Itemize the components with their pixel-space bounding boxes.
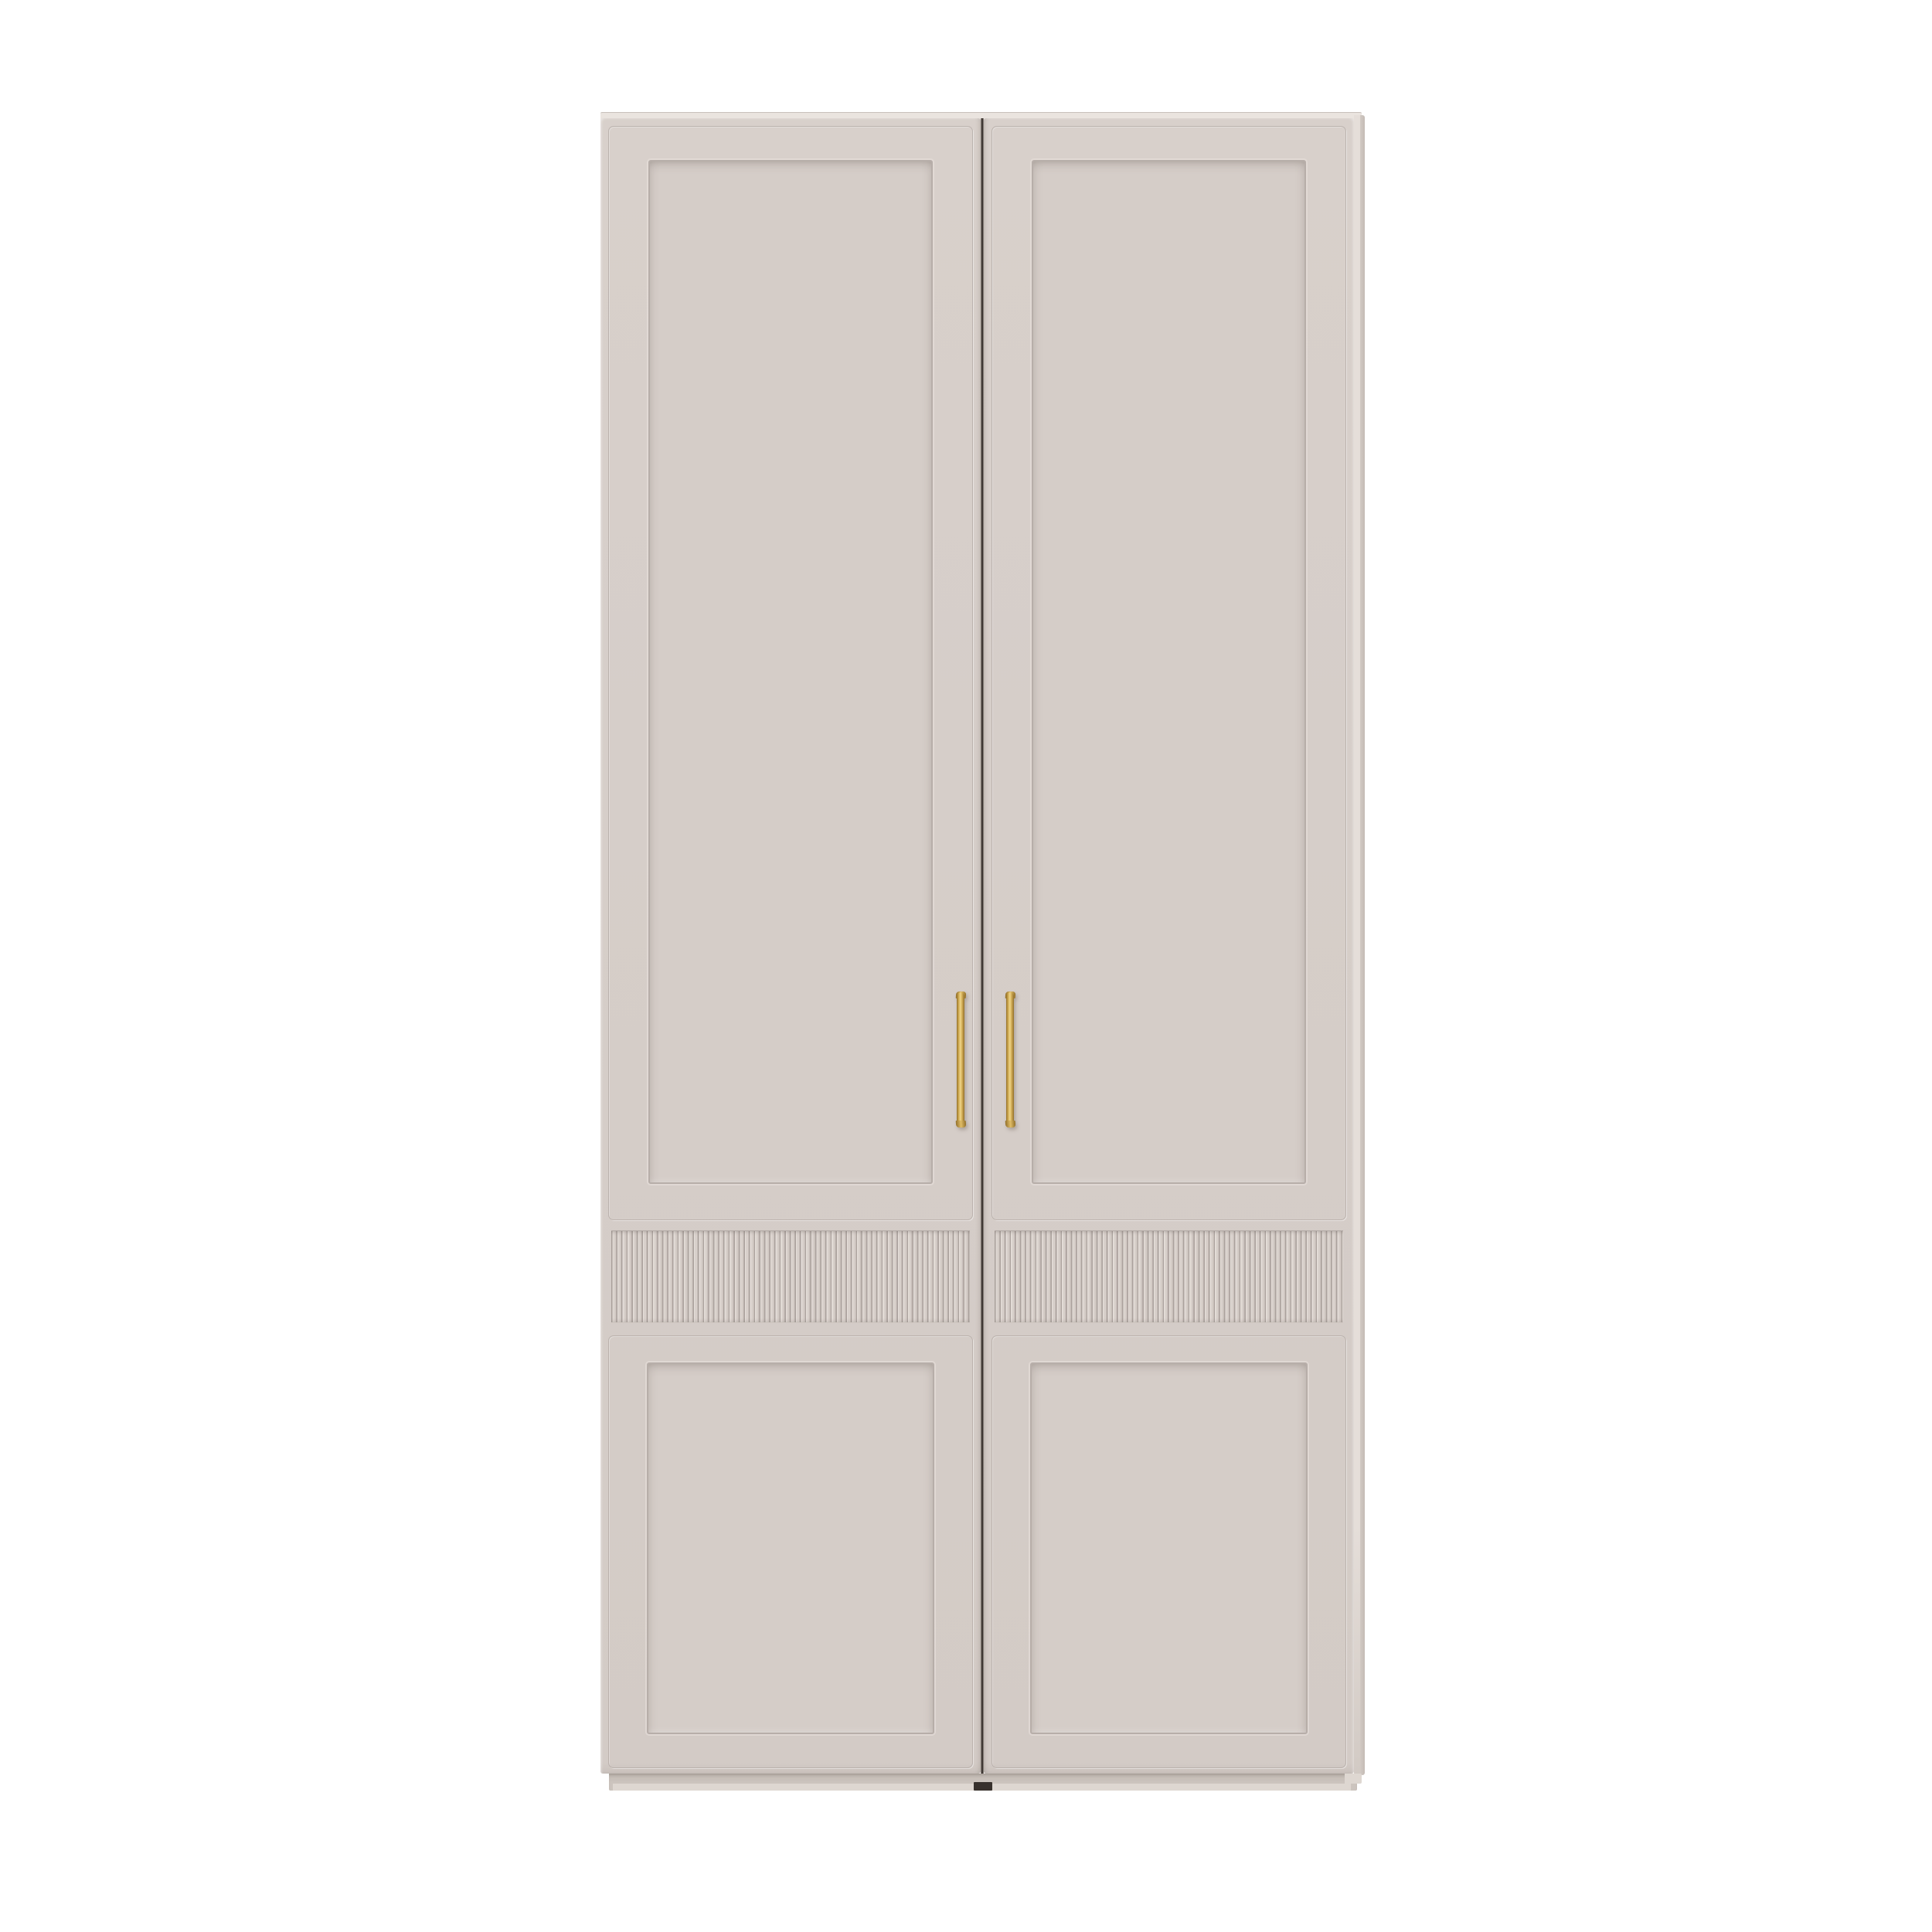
cabinet-right-side-highlight bbox=[1354, 115, 1360, 1775]
plinth-center-notch bbox=[974, 1782, 992, 1791]
plinth-base bbox=[609, 1774, 1357, 1791]
handle-bar bbox=[957, 992, 964, 1127]
product-render-canvas bbox=[0, 0, 1932, 1932]
plinth-right-foot bbox=[1345, 1774, 1362, 1784]
right-door-fluted-band bbox=[995, 1230, 1343, 1323]
left-door-brass-handle bbox=[957, 992, 964, 1127]
left-door-fluted-band bbox=[611, 1230, 970, 1323]
left-door-upper-panel bbox=[648, 160, 933, 1184]
cabinet-right-side-shade bbox=[1360, 115, 1365, 1775]
right-door-brass-handle bbox=[1006, 992, 1014, 1127]
right-door bbox=[984, 118, 1354, 1774]
handle-cap-bottom bbox=[955, 1121, 966, 1128]
right-door-lower-panel bbox=[1030, 1362, 1308, 1734]
handle-cap-bottom bbox=[1005, 1121, 1015, 1128]
wardrobe bbox=[600, 112, 1365, 1791]
left-door-lower-panel bbox=[647, 1362, 934, 1734]
handle-bar bbox=[1006, 992, 1014, 1127]
right-door-upper-panel bbox=[1032, 160, 1306, 1184]
left-door bbox=[600, 118, 981, 1774]
